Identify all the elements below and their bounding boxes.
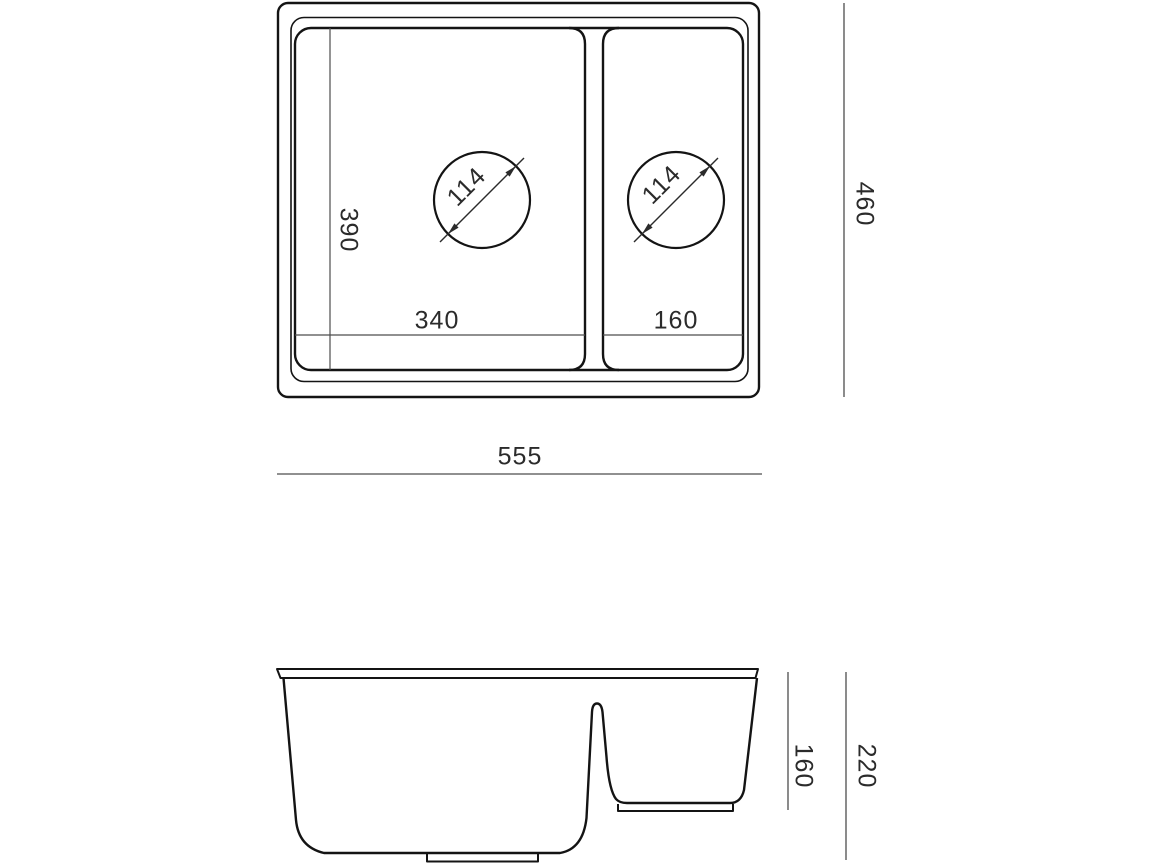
- dim-label-overall-width: 555: [498, 445, 543, 470]
- top-view-divider-right-wall: [603, 28, 619, 370]
- side-view-body-profile: [284, 678, 758, 853]
- dim-label-bowl-main-height: 220: [854, 744, 879, 789]
- dim-label-bowl-main-width: 340: [415, 309, 460, 334]
- side-view-main-bowl-foot: [427, 854, 538, 862]
- side-view-small-bowl-foot: [618, 804, 733, 811]
- top-view-divider-left-wall: [569, 28, 585, 370]
- top-view: [278, 3, 759, 397]
- sink-dimension-drawing: [0, 0, 1152, 864]
- dim-label-bowl-small-height: 160: [791, 744, 816, 789]
- top-view-outer-edge: [278, 3, 759, 397]
- dim-label-bowl-small-width: 160: [654, 309, 699, 334]
- dim-label-overall-height: 460: [852, 182, 877, 227]
- side-view: [277, 669, 758, 862]
- side-view-rim-flange: [277, 669, 758, 678]
- drawing-canvas: 390 340 160 114 114 460 555 160 220: [0, 0, 1152, 864]
- dim-label-bowl-main-depth: 390: [336, 208, 361, 253]
- dimension-lines: [277, 3, 846, 860]
